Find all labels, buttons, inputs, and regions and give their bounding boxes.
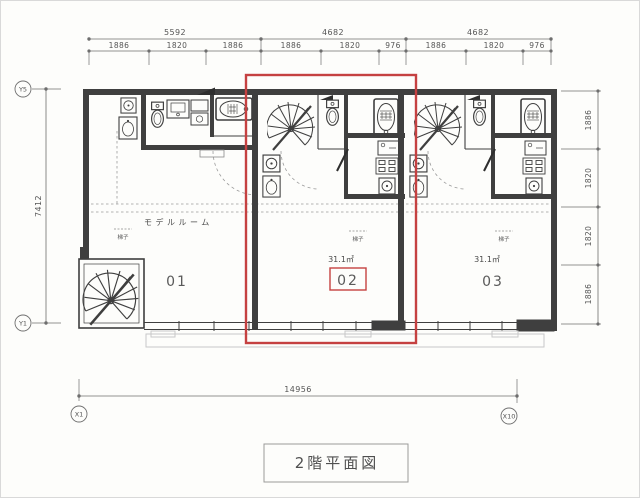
dimensions-right: [561, 90, 601, 325]
sink-icon: [119, 117, 137, 139]
title-block: 2階平面図: [264, 444, 408, 482]
party-wall-1: [252, 95, 258, 329]
dim-top-minor-4: 1886: [281, 41, 302, 50]
door-leaf-toilet-02: [320, 95, 333, 100]
floor-plan-sheet: モデルルーム 梯子 01 梯子 31.1㎡ 02: [0, 0, 640, 498]
unit-02-note: 梯子: [352, 235, 364, 243]
stove-icon: [410, 155, 427, 172]
stair-box-01: [79, 247, 144, 328]
dimensions-top: [88, 38, 553, 65]
washer-icon: [121, 98, 136, 113]
washer-icon: [526, 178, 542, 194]
floor-plan-drawing: モデルルーム 梯子 01 梯子 31.1㎡ 02: [1, 1, 640, 498]
dim-right-2: 1820: [584, 168, 593, 189]
table-icon: [523, 158, 545, 174]
table-icon: [376, 158, 398, 174]
unit-02-number: 02: [337, 273, 359, 289]
unit-02-highlight-box: [246, 75, 416, 343]
door-arcs: [213, 151, 466, 195]
south-window-band: [144, 320, 554, 331]
bathtub-icon: [521, 99, 545, 137]
left-wall: [83, 89, 89, 259]
dim-top-major-1: 5592: [164, 28, 186, 37]
unit-01-room-label: モデルルーム: [144, 217, 213, 227]
unit-01-number: 01: [166, 274, 188, 290]
dim-top-minor-2: 1820: [167, 41, 188, 50]
bath-sill: [200, 150, 224, 157]
sink-icon: [263, 176, 280, 197]
dim-right-1: 1886: [584, 110, 593, 131]
grid-label-y5: Y5: [18, 86, 27, 94]
dim-right-4: 1886: [584, 284, 593, 305]
grid-label-x10: X10: [503, 413, 516, 421]
dim-right-3: 1820: [584, 226, 593, 247]
ground-terrace-outline: [146, 331, 544, 347]
utility-fixtures: [376, 141, 399, 194]
door-leaf-toilet-03: [467, 95, 480, 100]
utility-fixtures: [523, 141, 546, 194]
bathtub-icon: [374, 99, 398, 137]
spiral-stair-icon: [414, 102, 462, 150]
drawing-title: 2階平面図: [295, 454, 380, 472]
dim-left: 7412: [34, 195, 43, 217]
sink-icon: [410, 176, 427, 197]
dim-top-minor-1: 1886: [109, 41, 130, 50]
unit-02-area: 31.1㎡: [328, 255, 354, 264]
laundry-pair-icon: [191, 100, 208, 125]
top-wall: [83, 89, 557, 95]
vanity-icon: [167, 100, 189, 118]
unit-03: 梯子 31.1㎡ 03: [410, 95, 553, 290]
right-wall: [551, 89, 557, 331]
dim-top-minor-6: 976: [385, 41, 401, 50]
toilet-icon: [474, 100, 486, 125]
grid-label-y1: Y1: [18, 320, 27, 328]
stove-icon: [263, 155, 280, 172]
unit-01: モデルルーム 梯子 01: [79, 88, 256, 329]
dim-top-major-3: 4682: [467, 28, 489, 37]
dim-top-minor-5: 1820: [340, 41, 361, 50]
toilet-icon: [327, 100, 339, 125]
grid-label-x1: X1: [75, 411, 84, 419]
dim-top-minor-8: 1820: [484, 41, 505, 50]
loft-dashed-lines: [91, 131, 551, 212]
unit-03-area: 31.1㎡: [474, 255, 500, 264]
dim-top-minor-7: 1886: [426, 41, 447, 50]
washer-icon: [379, 178, 395, 194]
dim-top-minor-9: 976: [529, 41, 545, 50]
unit-03-number: 03: [482, 274, 504, 290]
grid-markers: [15, 81, 517, 424]
party-wall-2: [398, 95, 404, 329]
unit-01-note: 梯子: [117, 233, 129, 241]
spiral-stair-icon: [267, 102, 315, 150]
unit-02: 梯子 31.1㎡ 02: [263, 95, 405, 290]
toilet-icon: [152, 102, 164, 127]
dim-bottom: 14956: [284, 385, 311, 394]
dim-top-major-2: 4682: [322, 28, 344, 37]
unit-03-note: 梯子: [498, 235, 510, 243]
dim-top-minor-3: 1886: [223, 41, 244, 50]
